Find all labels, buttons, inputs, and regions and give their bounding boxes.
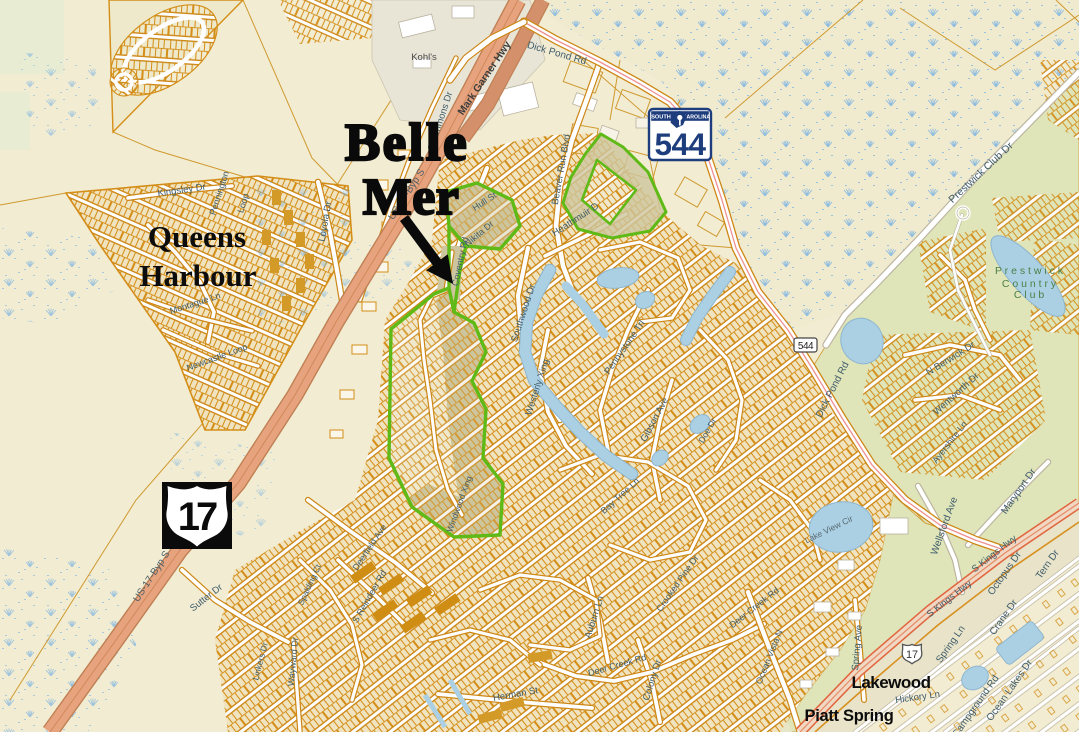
svg-text:C l u b: C l u b: [1014, 289, 1045, 301]
svg-text:544: 544: [798, 341, 814, 352]
svg-text:SOUTH: SOUTH: [651, 115, 671, 121]
svg-text:Lakewood: Lakewood: [851, 673, 930, 692]
svg-text:17: 17: [906, 649, 918, 661]
svg-text:CAROLINA: CAROLINA: [683, 115, 711, 121]
svg-text:544: 544: [654, 126, 706, 162]
svg-text:P r e s t w i c k: P r e s t w i c k: [995, 265, 1064, 277]
svg-text:Piatt Spring: Piatt Spring: [805, 707, 894, 725]
svg-text:Queens: Queens: [148, 219, 246, 254]
svg-text:17: 17: [178, 495, 217, 539]
svg-text:Kohl's: Kohl's: [411, 52, 437, 63]
svg-text:Belle: Belle: [345, 114, 469, 172]
svg-text:Mer: Mer: [363, 169, 460, 226]
svg-text:Harbour: Harbour: [139, 258, 256, 293]
